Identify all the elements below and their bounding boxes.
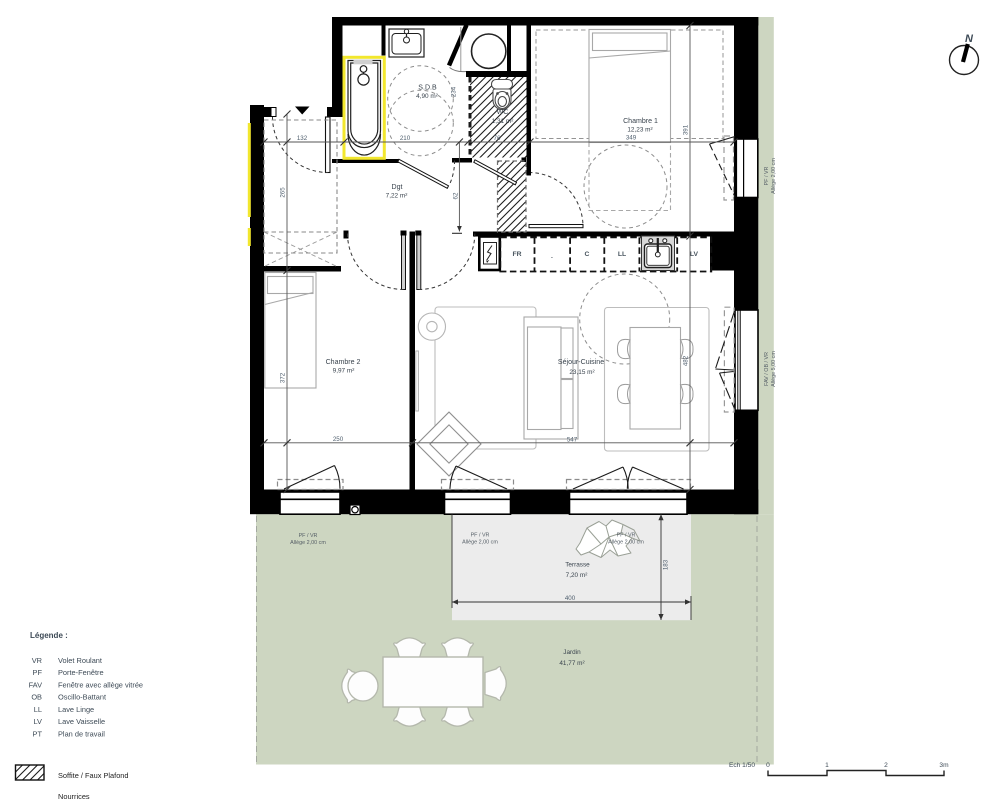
- svg-text:Chambre 1: Chambre 1: [623, 118, 658, 125]
- svg-text:VR: VR: [32, 656, 42, 665]
- svg-text:LV: LV: [690, 251, 699, 258]
- svg-text:Séjour-Cuisine: Séjour-Cuisine: [558, 359, 604, 366]
- svg-text:Soffite / Faux Plafond: Soffite / Faux Plafond: [58, 771, 129, 780]
- svg-text:Oscillo-Battant: Oscillo-Battant: [58, 693, 106, 702]
- svg-text:FAV: FAV: [29, 681, 42, 690]
- svg-text:482: 482: [683, 355, 690, 366]
- svg-text:0: 0: [766, 762, 770, 769]
- svg-text:2: 2: [884, 762, 888, 769]
- svg-text:250: 250: [333, 436, 344, 443]
- svg-text:C: C: [585, 251, 590, 258]
- svg-text:Fenêtre avec allège vitrée: Fenêtre avec allège vitrée: [58, 681, 143, 690]
- svg-text:Allège 5,00 cm: Allège 5,00 cm: [771, 351, 777, 387]
- svg-text:PF / VR: PF / VR: [471, 533, 490, 539]
- svg-text:3m: 3m: [939, 762, 949, 769]
- svg-text:Légende :: Légende :: [30, 631, 68, 640]
- svg-text:4,90 m²: 4,90 m²: [416, 93, 438, 100]
- svg-text:WC: WC: [497, 109, 509, 116]
- svg-text:Ech 1/50: Ech 1/50: [729, 762, 755, 769]
- svg-text:Chambre 2: Chambre 2: [326, 359, 361, 366]
- svg-text:1,31 m²: 1,31 m²: [492, 118, 514, 125]
- svg-text:1: 1: [825, 762, 829, 769]
- svg-text:210: 210: [400, 135, 411, 142]
- svg-text:Terrasse: Terrasse: [565, 562, 590, 569]
- svg-text:Nourrices: Nourrices: [58, 792, 90, 800]
- svg-text:LL: LL: [618, 251, 626, 258]
- svg-text:23,15 m²: 23,15 m²: [569, 369, 594, 376]
- svg-text:Volet Roulant: Volet Roulant: [58, 656, 102, 665]
- svg-text:372: 372: [280, 372, 287, 383]
- svg-text:Allège 2,00 cm: Allège 2,00 cm: [290, 540, 326, 546]
- svg-text:Jardin: Jardin: [563, 649, 581, 656]
- svg-text:Lave Vaisselle: Lave Vaisselle: [58, 717, 105, 726]
- svg-text:PF / VR: PF / VR: [299, 533, 318, 539]
- svg-text:OB: OB: [31, 693, 42, 702]
- svg-text:41,77 m²: 41,77 m²: [559, 660, 584, 667]
- svg-text:183: 183: [663, 559, 670, 570]
- svg-text:349: 349: [626, 135, 637, 142]
- svg-text:FR: FR: [512, 251, 521, 258]
- svg-text:76: 76: [494, 135, 501, 142]
- svg-text:Porte-Fenêtre: Porte-Fenêtre: [58, 668, 104, 677]
- svg-text:LL: LL: [34, 705, 42, 714]
- svg-text:400: 400: [565, 595, 576, 602]
- svg-text:234: 234: [451, 86, 458, 97]
- svg-text:S.D.B: S.D.B: [418, 85, 437, 92]
- svg-text:Lave Linge: Lave Linge: [58, 705, 94, 714]
- svg-text:12,23 m²: 12,23 m²: [627, 127, 652, 134]
- svg-text:62: 62: [453, 192, 460, 199]
- svg-text:Allège 2,00 cm: Allège 2,00 cm: [462, 539, 498, 545]
- svg-text:Dgt: Dgt: [392, 184, 403, 191]
- svg-text:547: 547: [567, 437, 578, 444]
- svg-text:391: 391: [683, 124, 690, 135]
- svg-text:.: .: [551, 253, 553, 260]
- svg-text:PT: PT: [33, 730, 43, 739]
- svg-text:Allège 2,00 cm: Allège 2,00 cm: [608, 539, 644, 545]
- svg-text:132: 132: [297, 135, 308, 142]
- svg-text:N: N: [965, 33, 974, 45]
- svg-text:LV: LV: [34, 717, 43, 726]
- svg-text:PF: PF: [33, 668, 43, 677]
- svg-text:PF / VR: PF / VR: [764, 166, 770, 185]
- svg-text:7,20 m²: 7,20 m²: [566, 572, 588, 579]
- svg-text:FAV / OB / VR: FAV / OB / VR: [764, 352, 770, 386]
- svg-text:Allège 2,00 cm: Allège 2,00 cm: [771, 158, 777, 194]
- svg-text:265: 265: [280, 187, 287, 198]
- svg-text:Plan de travail: Plan de travail: [58, 730, 105, 739]
- svg-text:PF / VR: PF / VR: [617, 533, 636, 539]
- svg-text:9,97 m²: 9,97 m²: [333, 368, 355, 375]
- svg-text:7,22 m²: 7,22 m²: [386, 193, 408, 200]
